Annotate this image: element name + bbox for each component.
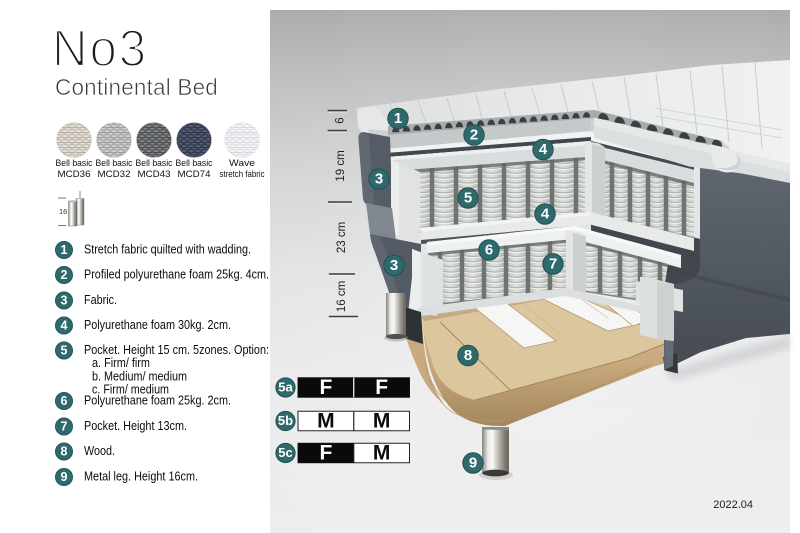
svg-text:1: 1: [61, 243, 68, 257]
svg-text:4: 4: [539, 141, 548, 158]
svg-text:7: 7: [61, 419, 68, 433]
svg-text:MCD74: MCD74: [178, 169, 211, 179]
svg-text:16 cm: 16 cm: [336, 281, 348, 312]
svg-text:Bell basic: Bell basic: [176, 158, 213, 168]
svg-text:8: 8: [464, 347, 472, 364]
svg-text:6: 6: [485, 241, 493, 258]
svg-text:Bell basic: Bell basic: [56, 158, 93, 168]
svg-text:2: 2: [61, 268, 68, 282]
svg-text:b. Medium/ medium: b. Medium/ medium: [92, 369, 187, 383]
svg-text:MCD43: MCD43: [138, 169, 171, 179]
svg-text:2022.04: 2022.04: [713, 499, 753, 511]
svg-text:2: 2: [470, 126, 478, 143]
svg-text:MCD36: MCD36: [58, 169, 91, 179]
svg-text:6: 6: [335, 117, 347, 123]
svg-text:MCD32: MCD32: [98, 169, 131, 179]
svg-text:Wood.: Wood.: [84, 444, 115, 458]
svg-text:Continental Bed: Continental Bed: [55, 74, 218, 100]
svg-text:7: 7: [549, 255, 557, 272]
svg-text:Fabric.: Fabric.: [84, 293, 117, 307]
svg-text:5a: 5a: [278, 379, 293, 394]
svg-text:Profiled polyurethane foam 25k: Profiled polyurethane foam 25kg. 4cm.: [84, 267, 269, 281]
svg-text:4: 4: [61, 318, 68, 332]
svg-text:19 cm: 19 cm: [335, 150, 347, 181]
svg-text:M: M: [373, 410, 391, 433]
svg-text:5: 5: [61, 343, 68, 357]
svg-text:Pocket. Height 13cm.: Pocket. Height 13cm.: [84, 419, 187, 433]
svg-text:3: 3: [390, 257, 398, 274]
svg-text:F: F: [319, 442, 332, 465]
svg-text:Wave: Wave: [229, 158, 255, 168]
svg-text:3: 3: [375, 170, 383, 187]
svg-text:Bell basic: Bell basic: [136, 158, 173, 168]
svg-text:Bell basic: Bell basic: [96, 158, 133, 168]
svg-text:M: M: [373, 442, 391, 465]
svg-text:c. Firm/ medium: c. Firm/ medium: [92, 382, 169, 396]
svg-text:1: 1: [394, 110, 402, 127]
svg-text:a. Firm/ firm: a. Firm/ firm: [92, 356, 150, 370]
svg-text:9: 9: [61, 470, 68, 484]
svg-text:5b: 5b: [278, 413, 293, 428]
svg-text:3: 3: [61, 293, 68, 307]
svg-text:16: 16: [59, 207, 67, 216]
svg-text:6: 6: [61, 394, 68, 408]
svg-text:4: 4: [541, 205, 550, 222]
svg-text:M: M: [317, 410, 335, 433]
svg-text:No3: No3: [52, 20, 148, 78]
svg-text:5: 5: [464, 189, 472, 206]
svg-text:23 cm: 23 cm: [336, 222, 348, 253]
svg-text:F: F: [375, 376, 388, 399]
svg-text:Pocket. Height 15 cm. 5zones.: Pocket. Height 15 cm. 5zones. Option:: [84, 343, 269, 357]
svg-text:stretch fabric: stretch fabric: [220, 169, 265, 179]
svg-text:Metal leg. Height 16cm.: Metal leg. Height 16cm.: [84, 469, 198, 483]
svg-text:F: F: [319, 376, 332, 399]
svg-text:Stretch fabric quilted with wa: Stretch fabric quilted with wadding.: [84, 242, 251, 256]
svg-text:9: 9: [469, 454, 477, 471]
svg-text:8: 8: [61, 444, 68, 458]
svg-text:5c: 5c: [278, 445, 292, 460]
svg-text:Polyurethane foam 30kg. 2cm.: Polyurethane foam 30kg. 2cm.: [84, 318, 231, 332]
